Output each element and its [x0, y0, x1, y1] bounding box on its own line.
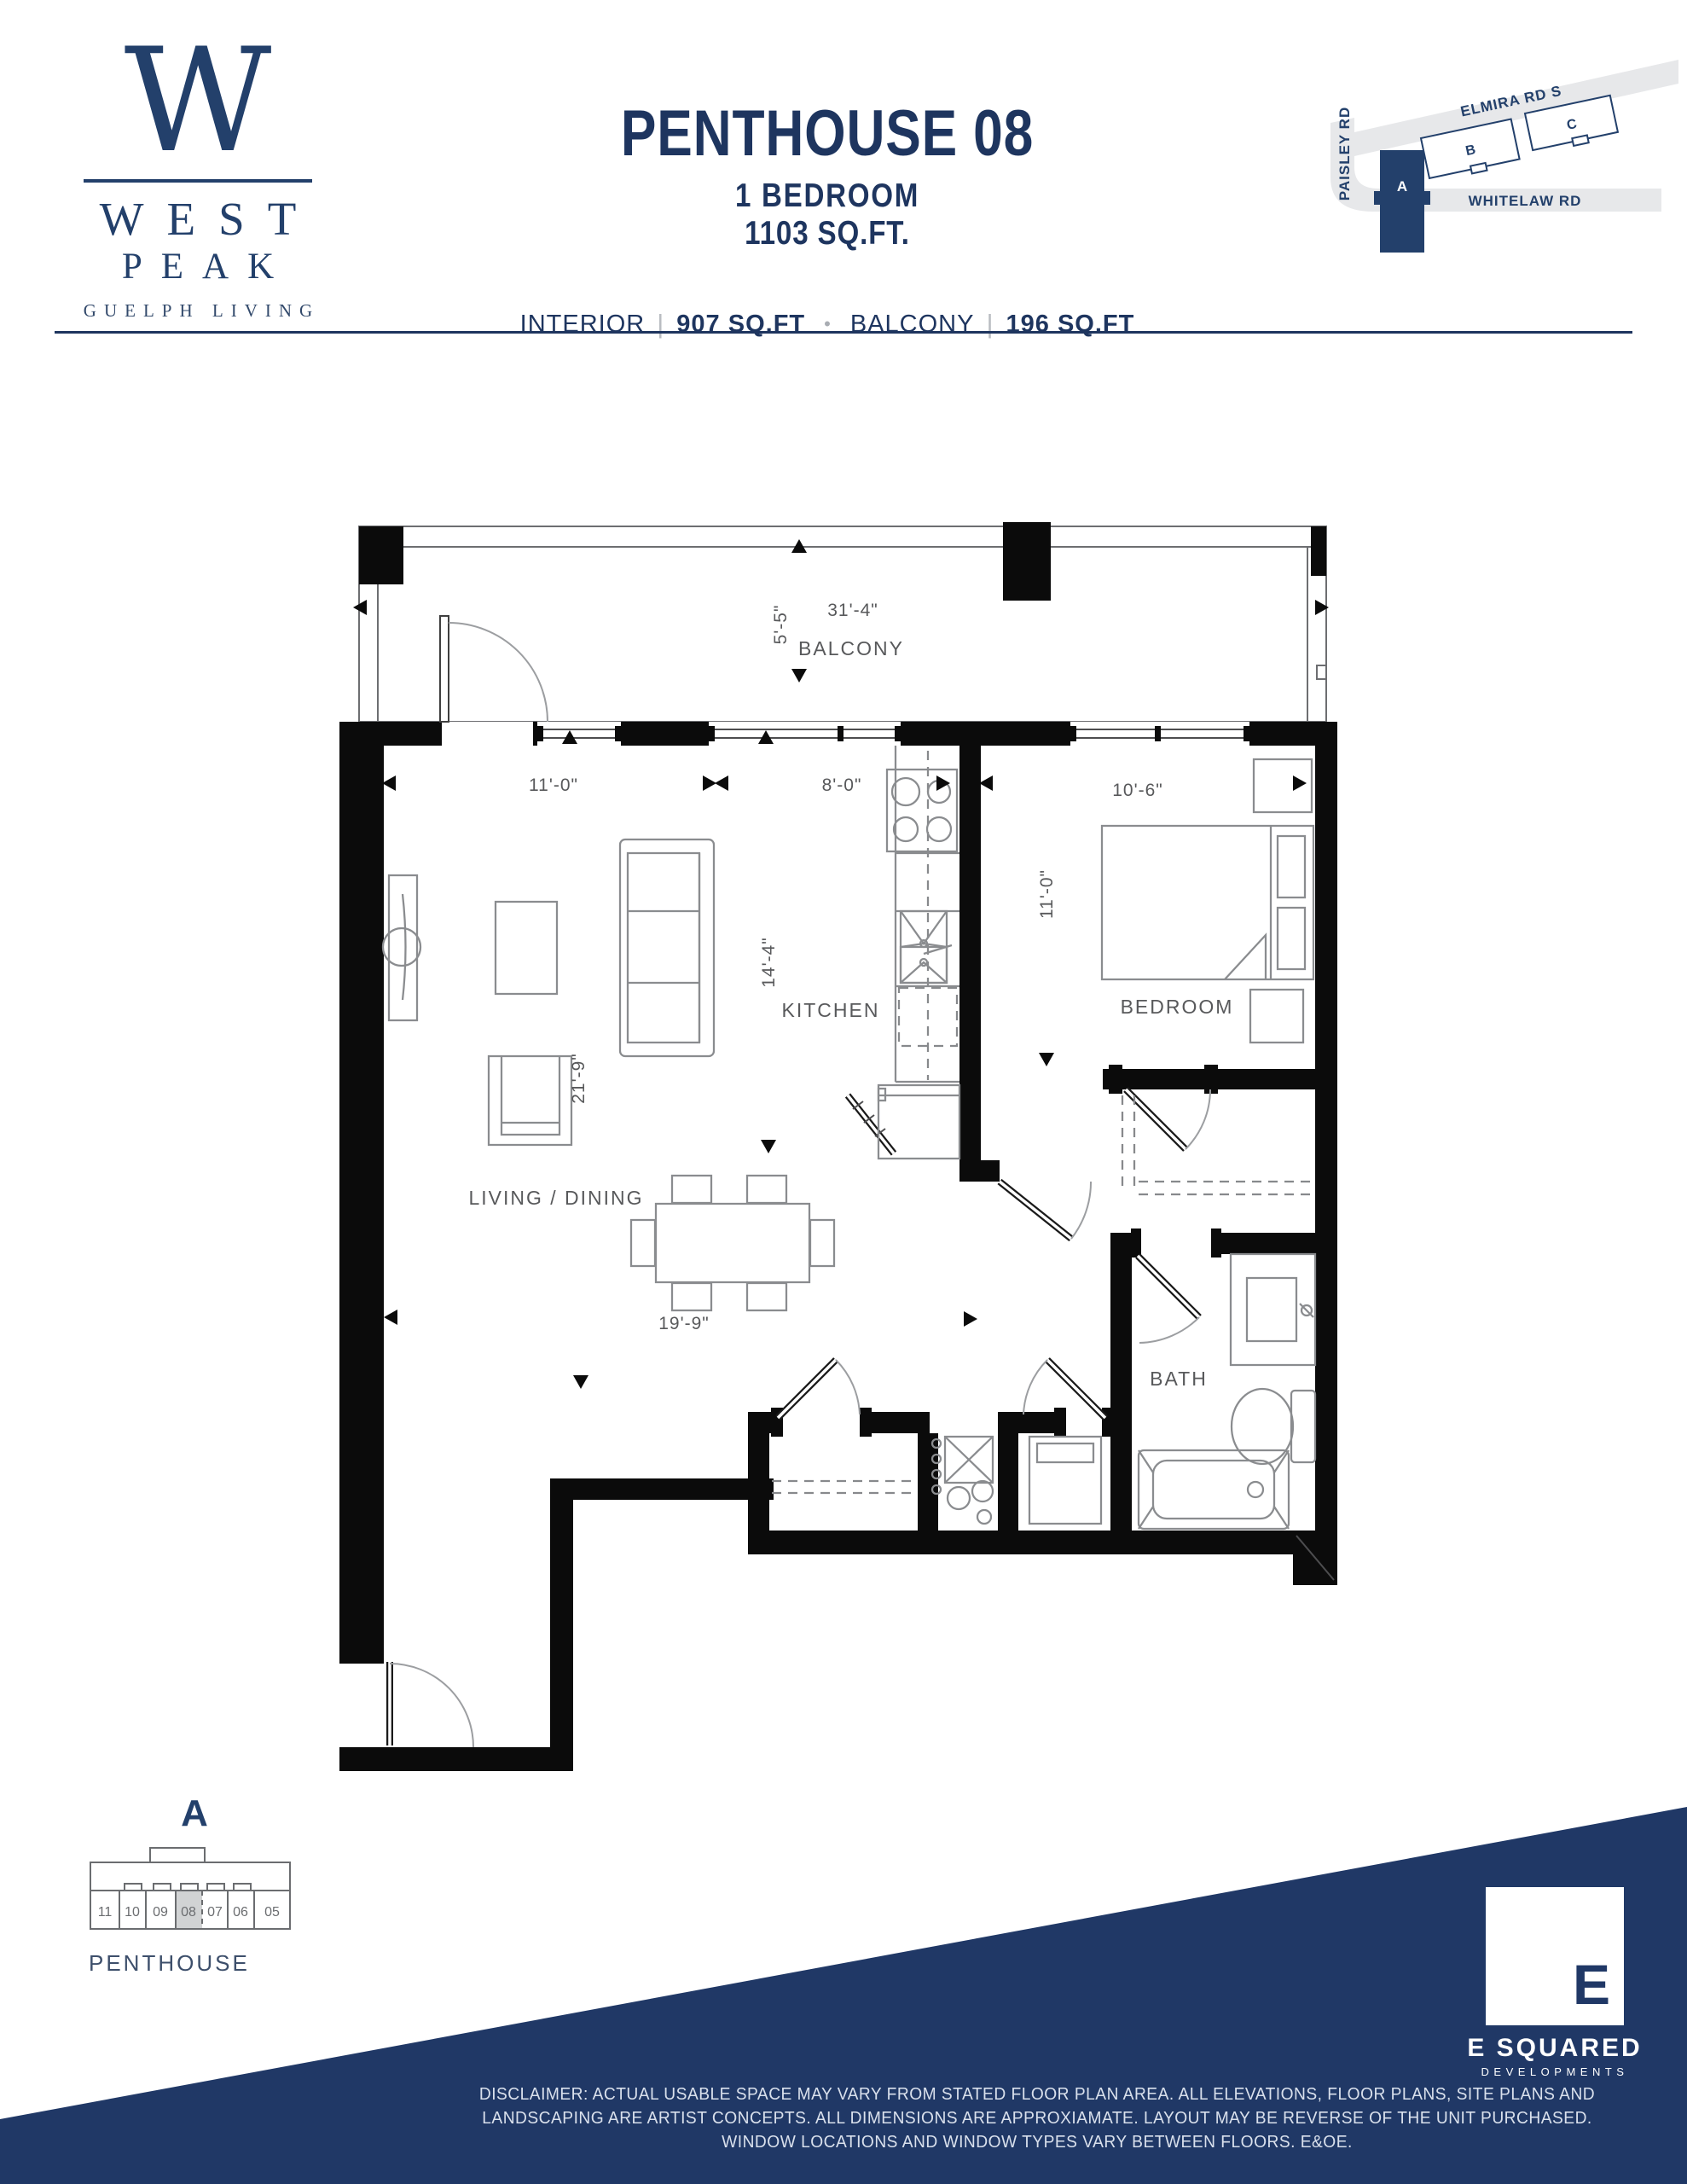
dim-living-length: 21'-9"	[569, 1053, 588, 1104]
disclaimer-line-2: LANDSCAPING ARE ARTIST CONCEPTS. ALL DIM…	[467, 2106, 1607, 2130]
label-bedroom: BEDROOM	[1121, 996, 1234, 1018]
entry-door	[390, 1662, 473, 1747]
bedroom-door	[1000, 1182, 1091, 1239]
westpeak-logo: W WEST PEAK GUELPH LIVING	[49, 24, 346, 322]
page-title: PENTHOUSE 08	[583, 101, 1072, 167]
logo-w-monogram: W	[49, 24, 346, 177]
svg-text:10: 10	[125, 1905, 140, 1920]
unit-title-block: PENTHOUSE 08 1 BEDROOM 1103 SQ.FT.	[529, 101, 1126, 251]
svg-text:07: 07	[207, 1905, 223, 1920]
coffee-table-icon	[496, 902, 557, 994]
kitchen-sink-icon	[901, 911, 952, 983]
dim-bedroom-width: 10'-6"	[1112, 781, 1163, 800]
dim-bedroom-length: 11'-0"	[1037, 869, 1057, 919]
bath-door	[1138, 1256, 1199, 1343]
road-label-paisley: PAISLEY RD	[1336, 107, 1353, 200]
disclaimer-text: DISCLAIMER: ACTUAL USABLE SPACE MAY VARY…	[467, 2082, 1607, 2154]
bathtub-icon	[1139, 1450, 1289, 1529]
developer-name: E SQUARED	[1450, 2034, 1660, 2063]
washer-dryer-icon	[1029, 1437, 1101, 1524]
floorplan-flyer-page: W WEST PEAK GUELPH LIVING PENTHOUSE 08 1…	[0, 0, 1687, 2184]
nightstand-icon	[1250, 990, 1303, 1043]
road-label-whitelaw: WHITELAW RD	[1469, 193, 1582, 209]
nightstand-icon	[1254, 759, 1312, 812]
label-living-dining: LIVING / DINING	[468, 1187, 643, 1209]
svg-text:05: 05	[264, 1905, 280, 1920]
developer-division: DEVELOPMENTS	[1450, 2065, 1660, 2078]
kitchen-pantry-door	[848, 1095, 894, 1153]
divider-bar: |	[986, 309, 994, 340]
dim-kitchen-width: 8'-0"	[822, 775, 862, 795]
dim-kitchen-length: 14'-4"	[759, 937, 779, 988]
logo-tagline: GUELPH LIVING	[49, 300, 346, 322]
utility-range-icon	[932, 1437, 993, 1524]
disclaimer-line-1: DISCLAIMER: ACTUAL USABLE SPACE MAY VARY…	[467, 2082, 1607, 2106]
sofa-icon	[620, 839, 714, 1056]
dim-dining-width: 19'-9"	[658, 1314, 710, 1333]
site-location-map: ELMIRA RD S PAISLEY RD WHITELAW RD B C A	[1320, 24, 1678, 263]
unit-bedrooms: 1 BEDROOM	[574, 179, 1081, 213]
svg-text:06: 06	[233, 1905, 248, 1920]
esquared-wordmark: E SQUARED DEVELOPMENTS	[1450, 2034, 1660, 2078]
svg-text:A: A	[1397, 178, 1407, 195]
balcony-rail	[359, 522, 1326, 722]
unit-total-area: 1103 SQ.FT.	[574, 217, 1081, 251]
dimension-arrows	[353, 539, 1329, 1389]
esquared-logo: E	[1486, 1887, 1624, 2025]
disclaimer-line-3: WINDOW LOCATIONS AND WINDOW TYPES VARY B…	[467, 2130, 1607, 2154]
interior-area-value: 907 SQ.FT	[676, 311, 805, 339]
svg-text:08: 08	[181, 1905, 196, 1920]
svg-text:09: 09	[153, 1905, 168, 1920]
toilet-icon	[1232, 1389, 1315, 1464]
tv-console-icon	[383, 875, 420, 1020]
esquared-logo-letter: E	[1573, 1952, 1610, 2017]
walls	[339, 722, 1337, 1771]
foyer-closet-door	[778, 1360, 860, 1418]
keyplan-unit-numbers: 11 10 09 08 07 06 05	[98, 1905, 280, 1920]
accent-chair-icon	[489, 1056, 571, 1145]
svg-text:11: 11	[98, 1905, 113, 1920]
logo-name-peak: PEAK	[49, 246, 346, 288]
unit-areas-line: INTERIOR | 907 SQ.FT • BALCONY | 196 SQ.…	[529, 309, 1126, 340]
building-key-plan: A 11 10 09 08 07 06 05 PENTHO	[75, 1781, 322, 1995]
header-rule	[55, 331, 1632, 334]
balcony-door	[440, 616, 548, 722]
building-a-highlighted: A	[1374, 150, 1430, 253]
balcony-label: BALCONY	[850, 311, 975, 339]
kitchen-counter	[878, 746, 959, 1159]
keyplan-block-label: A	[181, 1792, 208, 1834]
label-kitchen: KITCHEN	[782, 999, 880, 1021]
dining-table-icon	[631, 1176, 834, 1310]
label-bath: BATH	[1150, 1368, 1208, 1390]
interior-label: INTERIOR	[520, 311, 646, 339]
keyplan-floor-label: PENTHOUSE	[89, 1950, 250, 1976]
bedroom-closet-door	[1126, 1089, 1210, 1149]
logo-name-west: WEST	[49, 195, 346, 244]
bath-vanity-icon	[1231, 1254, 1315, 1365]
divider-bar: |	[657, 309, 664, 340]
floor-plan: BALCONY LIVING / DINING KITCHEN BEDROOM …	[333, 503, 1348, 1800]
dim-balcony-depth: 5'-5"	[771, 605, 791, 645]
dim-living-width: 11'-0"	[529, 775, 578, 795]
bed-icon	[1102, 826, 1313, 979]
label-balcony: BALCONY	[798, 637, 904, 659]
window-wall	[339, 616, 1337, 746]
dim-balcony-width: 31'-4"	[827, 601, 878, 620]
balcony-area-value: 196 SQ.FT	[1006, 311, 1135, 339]
